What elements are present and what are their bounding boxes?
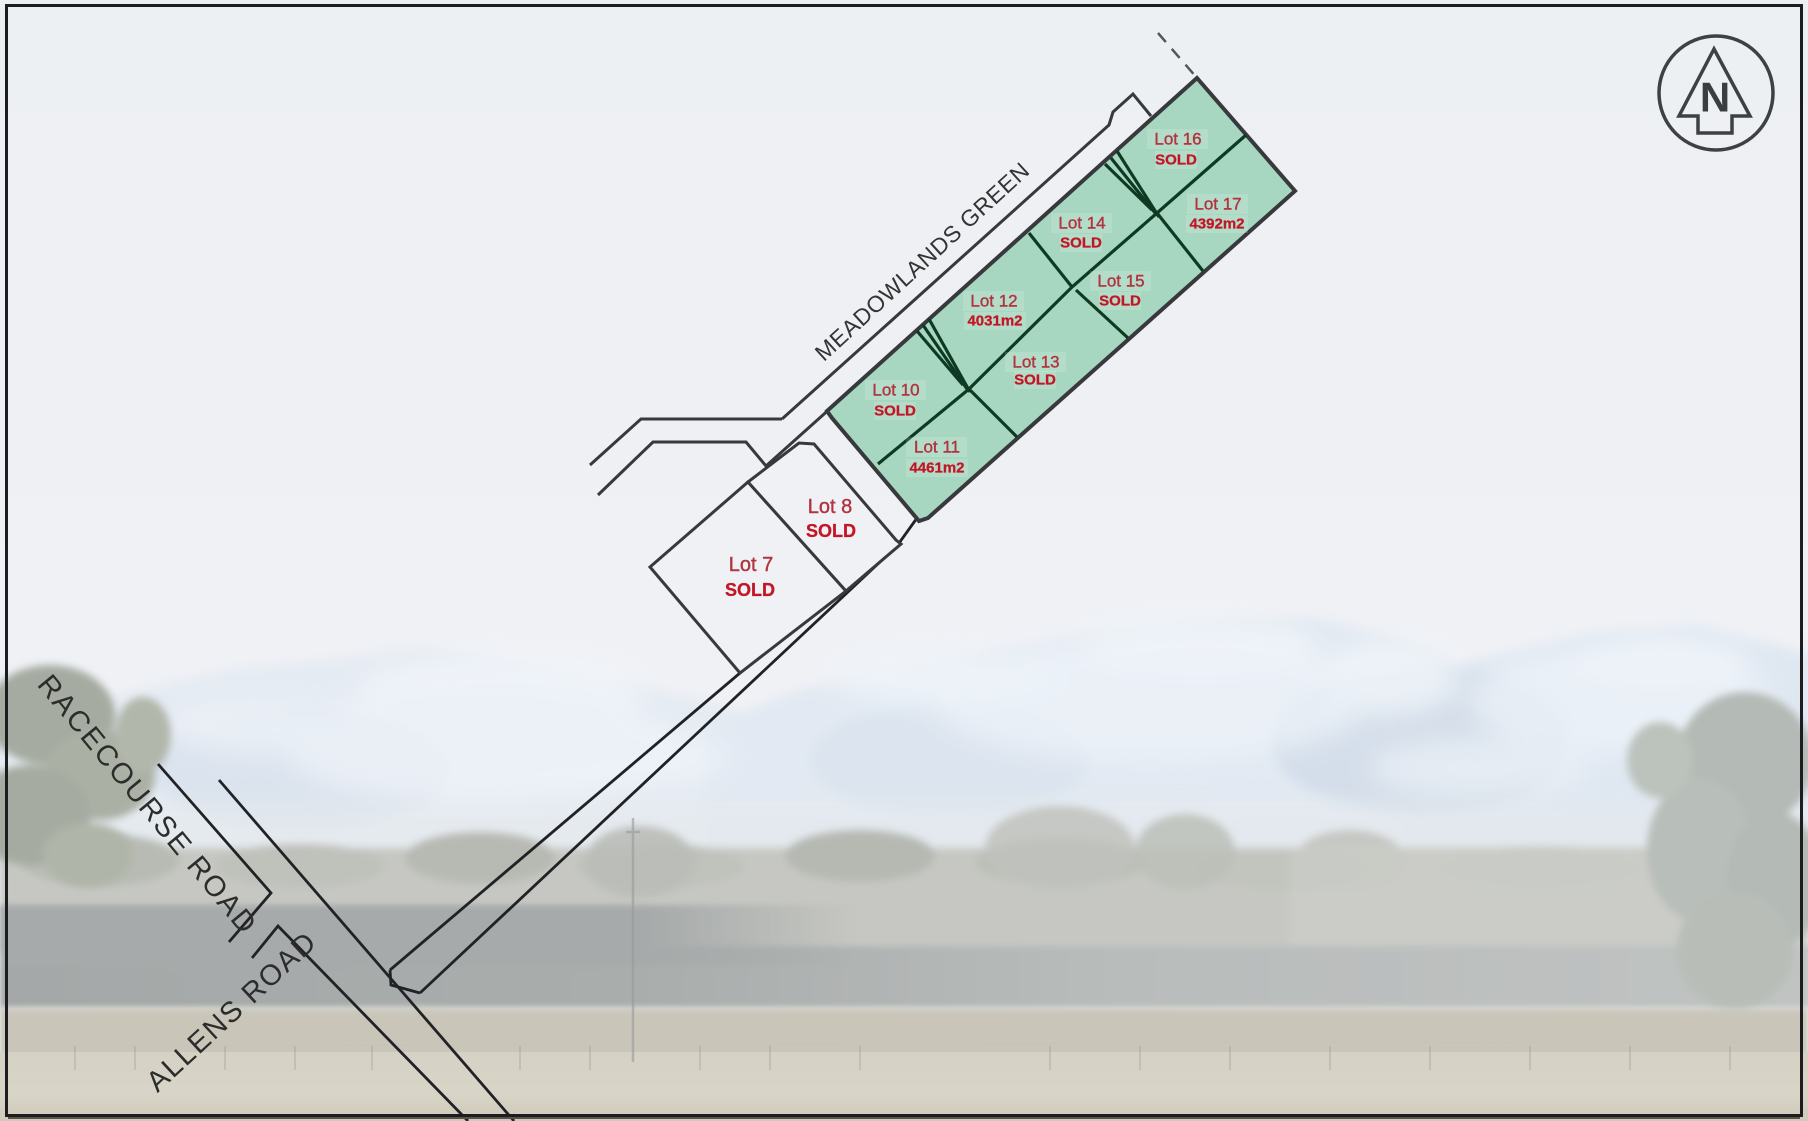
svg-text:Lot 10: Lot 10 xyxy=(872,381,919,400)
svg-text:4031m2: 4031m2 xyxy=(967,313,1022,330)
svg-text:Lot 7: Lot 7 xyxy=(729,554,773,576)
svg-text:Lot 13: Lot 13 xyxy=(1012,353,1059,372)
svg-text:SOLD: SOLD xyxy=(806,521,856,541)
svg-text:Lot 11: Lot 11 xyxy=(914,438,960,457)
svg-text:4392m2: 4392m2 xyxy=(1189,216,1244,233)
svg-text:N: N xyxy=(1700,74,1730,121)
svg-text:Lot 12: Lot 12 xyxy=(970,292,1017,311)
svg-text:SOLD: SOLD xyxy=(874,403,916,420)
svg-text:SOLD: SOLD xyxy=(725,580,775,600)
svg-text:Lot 8: Lot 8 xyxy=(808,496,852,518)
svg-text:SOLD: SOLD xyxy=(1060,235,1102,252)
svg-text:Lot 17: Lot 17 xyxy=(1194,195,1241,214)
svg-text:SOLD: SOLD xyxy=(1014,372,1056,389)
svg-text:Lot 16: Lot 16 xyxy=(1154,130,1201,149)
svg-text:Lot 15: Lot 15 xyxy=(1097,272,1144,291)
svg-text:SOLD: SOLD xyxy=(1155,152,1197,169)
svg-text:Lot 14: Lot 14 xyxy=(1058,214,1105,233)
svg-text:SOLD: SOLD xyxy=(1099,293,1141,310)
svg-text:4461m2: 4461m2 xyxy=(909,460,964,477)
